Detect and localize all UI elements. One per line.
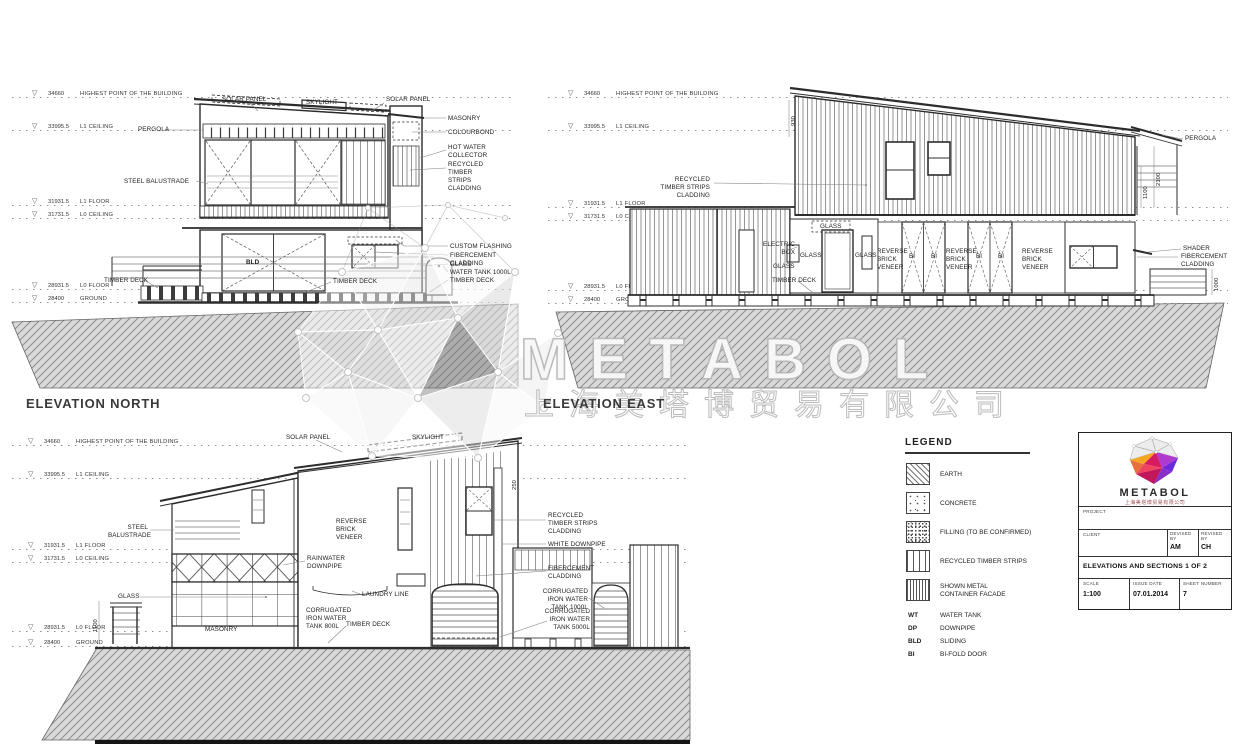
annotation: RAINWATER DOWNPIPE <box>307 555 347 571</box>
annotation: MASONRY <box>448 115 480 123</box>
annotation: SOLAR PANEL <box>286 434 330 442</box>
north-elevation-title: ELEVATION NORTH <box>26 396 160 411</box>
sliding-door-mark: BLD <box>246 259 259 267</box>
bifold-mark: BI <box>998 253 1004 261</box>
titleblock-brand: METABOL <box>1079 487 1231 499</box>
scale-value: 1:100 <box>1083 591 1101 598</box>
devised-by-value: AM <box>1170 544 1181 551</box>
bifold-mark: BI <box>909 253 915 261</box>
annotation: PERGOLA <box>1185 135 1216 143</box>
title-block: METABOL 上海美塔博贸易有限公司 PROJECT CLIENT DEVIS… <box>1078 432 1232 610</box>
earth-swatch <box>906 463 930 485</box>
dimension: 1100 <box>1143 186 1150 199</box>
annotation: TIMBER DECK <box>104 277 148 285</box>
annotation: TIMBER DECK <box>450 277 494 285</box>
abbr: BLD <box>908 638 921 645</box>
annotation: GLASS <box>773 263 795 271</box>
annotation: WHITE DOWNPIPE <box>548 541 612 549</box>
annotation: SOLAR PANEL <box>386 96 430 104</box>
bifold-mark: BI <box>931 253 937 261</box>
dimension: 2100 <box>1156 173 1163 186</box>
annotation: STEEL BALUSTRADE <box>124 178 189 186</box>
annotation: MASONRY <box>205 626 237 634</box>
annotation: GLASS <box>118 593 140 601</box>
legend-item-label: RECYCLED TIMBER STRIPS <box>940 558 1027 566</box>
annotation: TIMBER DECK <box>333 278 377 286</box>
concrete-swatch <box>906 492 930 514</box>
annotation: FIBERCEMENT CLADDING <box>548 565 600 581</box>
abbr-meaning: BI-FOLD DOOR <box>940 651 987 658</box>
annotation: TIMBER DECK <box>346 621 390 629</box>
filling-swatch <box>906 521 930 543</box>
annotation: REVERSE BRICK VENEER <box>946 248 974 272</box>
sheet-number-value: 7 <box>1183 591 1187 598</box>
annotation: WATER TANK 1000L <box>450 269 512 277</box>
abbr-meaning: SLIDING <box>940 638 966 645</box>
metabol-logo <box>1079 435 1229 487</box>
abbr: WT <box>908 612 918 619</box>
abbr-meaning: WATER TANK <box>940 612 981 619</box>
annotation: ELECTRIC BOX <box>761 241 795 257</box>
annotation: SOLAR PANEL <box>222 96 266 104</box>
annotation: TIMBER DECK <box>772 277 816 285</box>
revised-by-value: CH <box>1201 544 1211 551</box>
client-label: CLIENT <box>1083 532 1101 537</box>
dimension: 250 <box>512 480 519 490</box>
devised-by-label: DEVISED BY <box>1170 531 1196 541</box>
revised-by-label: REVISED BY <box>1201 531 1227 541</box>
annotation: SKYLIGHT <box>306 99 338 107</box>
drawing-sheet: 34660 HIGHEST POINT OF THE BUILDING 3399… <box>0 0 1250 750</box>
annotation: HOT WATER COLLECTOR <box>448 144 492 160</box>
annotation: RECYCLED TIMBER STRIPS CLADDING <box>548 512 600 536</box>
annotation: STEEL BALUSTRADE <box>108 524 148 540</box>
legend-item-label: SHOWN METAL CONTAINER FACADE <box>940 583 1012 600</box>
annotation: SHADER <box>1183 245 1210 253</box>
annotation: SKYLIGHT <box>412 434 444 442</box>
legend-title: LEGEND <box>905 437 953 448</box>
legend-item-label: CONCRETE <box>940 500 976 508</box>
annotation: GLASS <box>450 261 472 269</box>
annotation: RECYCLED TIMBER STRIPS CLADDING <box>448 161 496 192</box>
dimension: 1000 <box>1214 278 1221 291</box>
annotation: REVERSE BRICK VENEER <box>336 518 380 542</box>
legend-item-label: FILLING (TO BE CONFIRMED) <box>940 529 1031 537</box>
annotation: GLASS <box>855 252 877 260</box>
dimension: 1100 <box>93 619 100 632</box>
issue-date-value: 07.01.2014 <box>1133 591 1168 598</box>
timber-strips-swatch <box>906 550 930 572</box>
project-label: PROJECT <box>1083 509 1106 514</box>
sheet-number-label: SHEET NUMBER <box>1183 581 1222 586</box>
legend-item-label: EARTH <box>940 471 962 479</box>
annotation: COLOURBOND <box>448 129 494 137</box>
annotation: RECYCLED TIMBER STRIPS CLADDING <box>652 176 710 200</box>
legend-rule <box>905 452 1030 454</box>
bifold-mark: BI <box>976 253 982 261</box>
annotation: GLASS <box>820 223 842 231</box>
abbr: BI <box>908 651 915 658</box>
annotation: FIBERCEMENT CLADDING <box>1181 253 1229 269</box>
annotation: REVERSE BRICK VENEER <box>877 248 905 272</box>
annotation: CORRUGATED IRON WATER TANK 5000L <box>540 608 590 632</box>
annotation: PERGOLA <box>138 126 169 134</box>
sheet-title: ELEVATIONS AND SECTIONS 1 OF 2 <box>1083 563 1207 570</box>
annotation: GLASS <box>800 252 822 260</box>
metal-facade-swatch <box>906 579 930 601</box>
scale-label: SCALE <box>1083 581 1099 586</box>
abbr: DP <box>908 625 917 632</box>
annotation: LAUNDRY LINE <box>362 591 409 599</box>
titleblock-company: 上海美塔博贸易有限公司 <box>1079 499 1231 506</box>
annotation: REVERSE BRICK VENEER <box>1022 248 1054 272</box>
issue-date-label: ISSUE DATE <box>1133 581 1162 586</box>
abbr-meaning: DOWNPIPE <box>940 625 975 632</box>
east-elevation-title: ELEVATION EAST <box>543 396 665 411</box>
annotation: CUSTOM FLASHING <box>450 243 512 251</box>
dimension: 930 <box>791 116 798 126</box>
